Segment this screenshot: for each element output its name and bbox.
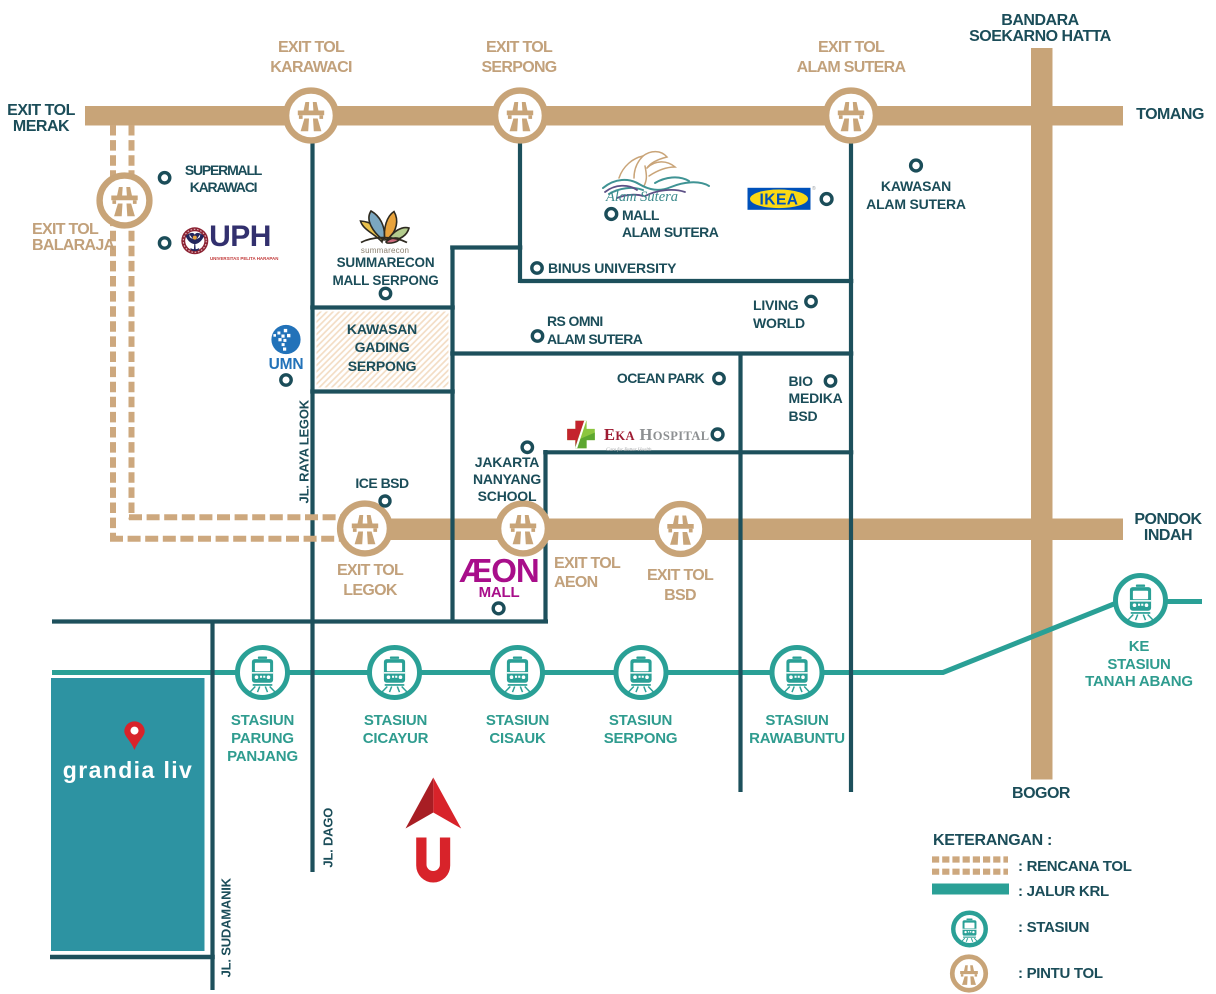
svg-text:®: ® <box>812 185 816 192</box>
svg-text:IKEA: IKEA <box>759 191 798 208</box>
svg-text:Alam Sutera: Alam Sutera <box>605 189 678 205</box>
